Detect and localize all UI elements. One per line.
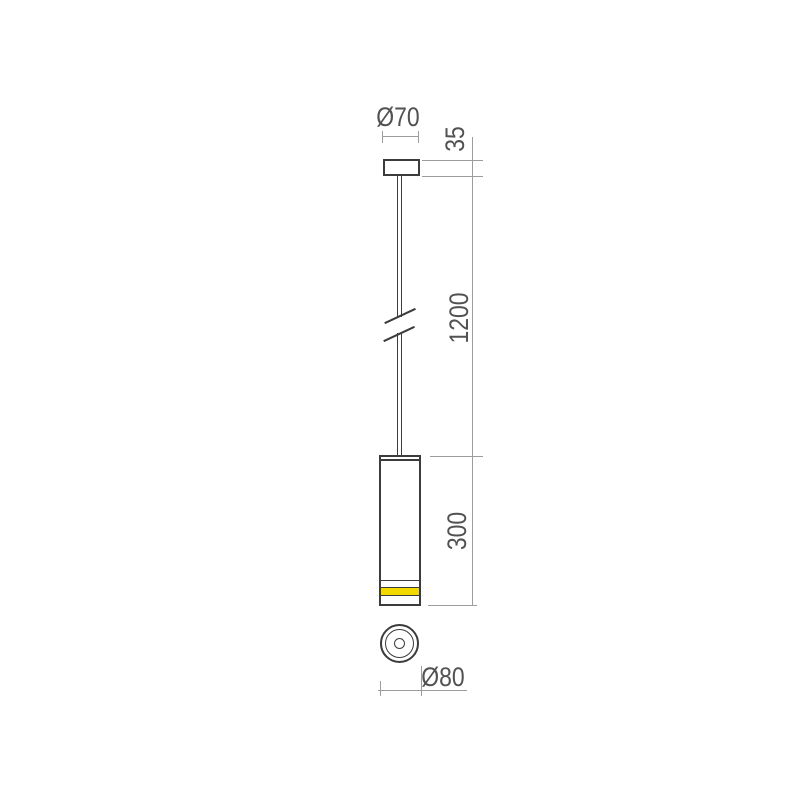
dim-label-body-height: 300	[443, 489, 471, 574]
canopy-diameter-dim-tick-right	[418, 131, 419, 143]
body-top-extension-line	[430, 456, 483, 457]
dim-label-canopy-diameter: Ø70	[364, 103, 432, 131]
dim-label-canopy-height: 35	[441, 97, 469, 182]
dim-label-body-diameter: Ø80	[409, 663, 477, 691]
canopy-diameter-dim-line	[382, 136, 419, 137]
bottom-view-center-circle	[394, 638, 405, 649]
lamp-body-outline	[379, 455, 421, 606]
lamp-body-separator-line	[381, 580, 419, 581]
ceiling-canopy-outline	[383, 159, 420, 176]
canopy-diameter-dim-tick-left	[382, 131, 383, 143]
bottom-view-extension-line-left	[380, 681, 381, 696]
suspension-cable-upper	[397, 176, 402, 317]
body-bottom-extension-line	[428, 605, 477, 606]
lamp-body-top-cap-line	[381, 459, 419, 461]
lamp-body-accent-band	[381, 587, 419, 596]
pendant-lamp-technical-drawing: Ø70 35 1200 300 Ø80	[0, 0, 800, 800]
vertical-dimension-line	[472, 137, 473, 606]
dim-label-suspension-length: 1200	[445, 276, 473, 361]
suspension-cable-lower	[397, 333, 402, 456]
